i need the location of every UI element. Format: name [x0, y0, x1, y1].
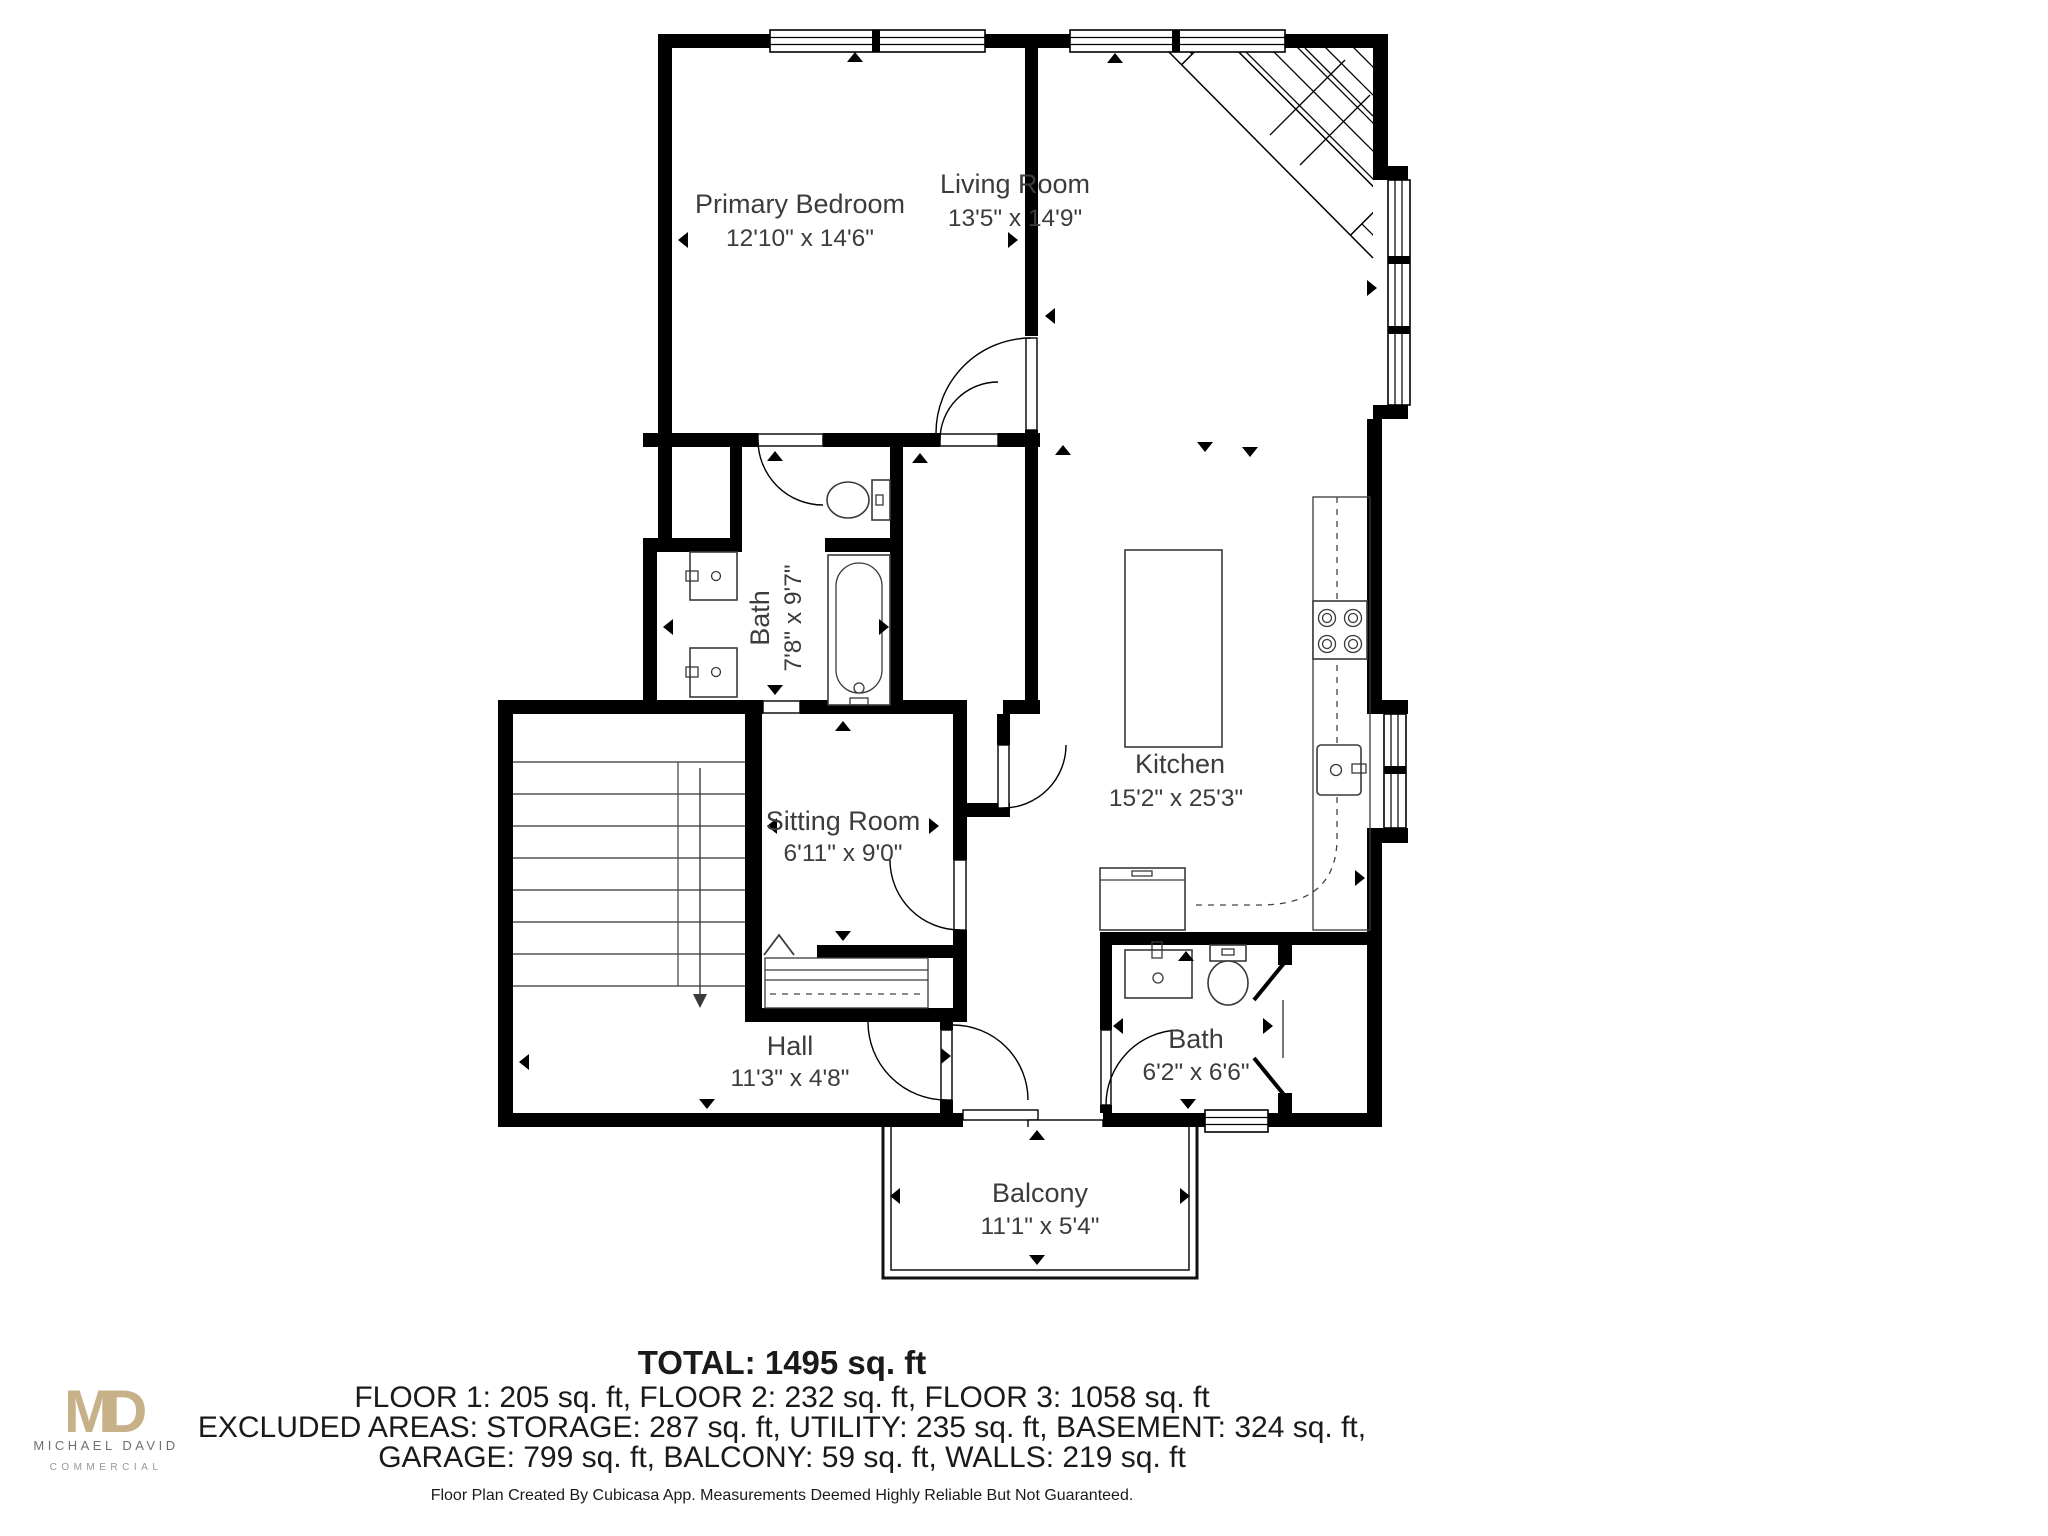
staircase-corner-hatch	[1146, 30, 1576, 270]
chevron-ceiling-mark	[764, 935, 794, 955]
pocket-door	[1254, 962, 1285, 1096]
excluded-areas-text-1: EXCLUDED AREAS: STORAGE: 287 sq. ft, UTI…	[198, 1411, 1366, 1444]
room-label-balcony: Balcony	[992, 1178, 1089, 1208]
room-dims-hall: 11'3" x 4'8"	[731, 1065, 850, 1092]
room-label-hall: Hall	[767, 1031, 814, 1061]
wardrobe-icon	[765, 958, 928, 1008]
room-label-bath-upper: Bath	[745, 590, 775, 646]
room-dims-primary-bedroom: 12'10" x 14'6"	[726, 225, 874, 252]
stove-burners-icon	[1313, 601, 1367, 659]
logo-company-name: MICHAEL DAVID	[33, 1438, 178, 1453]
sink-lower-icon	[1125, 942, 1192, 998]
doors	[758, 338, 1178, 1105]
room-dims-bath-lower: 6'2" x 6'6"	[1142, 1059, 1249, 1086]
room-label-sitting-room: Sitting Room	[766, 806, 921, 836]
room-label-primary-bedroom: Primary Bedroom	[695, 189, 905, 219]
logo-division: COMMERCIAL	[50, 1462, 163, 1473]
excluded-areas-text-2: GARAGE: 799 sq. ft, BALCONY: 59 sq. ft, …	[378, 1441, 1186, 1474]
room-dims-kitchen: 15'2" x 25'3"	[1109, 785, 1243, 812]
washer-icon	[1100, 868, 1185, 930]
company-logo: M D MICHAEL DAVID COMMERCIAL	[33, 1378, 178, 1473]
room-dims-living-room: 13'5" x 14'9"	[948, 205, 1082, 232]
room-label-bath-lower: Bath	[1168, 1024, 1224, 1054]
floor-plan-page: Primary Bedroom 12'10" x 14'6" Living Ro…	[0, 0, 2048, 1536]
room-dims-sitting-room: 6'11" x 9'0"	[784, 840, 903, 867]
toilet-upper-icon	[827, 480, 890, 520]
floor-plan-canvas: Primary Bedroom 12'10" x 14'6" Living Ro…	[0, 0, 2048, 1536]
room-dims-balcony: 11'1" x 5'4"	[981, 1213, 1100, 1240]
staircase	[513, 762, 745, 1008]
logo-monogram-d: D	[104, 1378, 147, 1445]
toilet-lower-icon	[1208, 945, 1248, 1005]
room-dims-bath-upper: 7'8" x 9'7"	[780, 564, 807, 671]
floors-area-text: FLOOR 1: 205 sq. ft, FLOOR 2: 232 sq. ft…	[354, 1381, 1210, 1414]
disclaimer-text: Floor Plan Created By Cubicasa App. Meas…	[431, 1487, 1134, 1504]
vanity-sinks-icon	[686, 552, 737, 697]
kitchen-sink-icon	[1317, 745, 1366, 795]
room-label-kitchen: Kitchen	[1135, 749, 1225, 779]
area-summary: TOTAL: 1495 sq. ft FLOOR 1: 205 sq. ft, …	[198, 1344, 1366, 1504]
room-label-living-room: Living Room	[940, 169, 1090, 199]
total-area-text: TOTAL: 1495 sq. ft	[638, 1344, 927, 1381]
kitchen-island	[1125, 550, 1222, 747]
